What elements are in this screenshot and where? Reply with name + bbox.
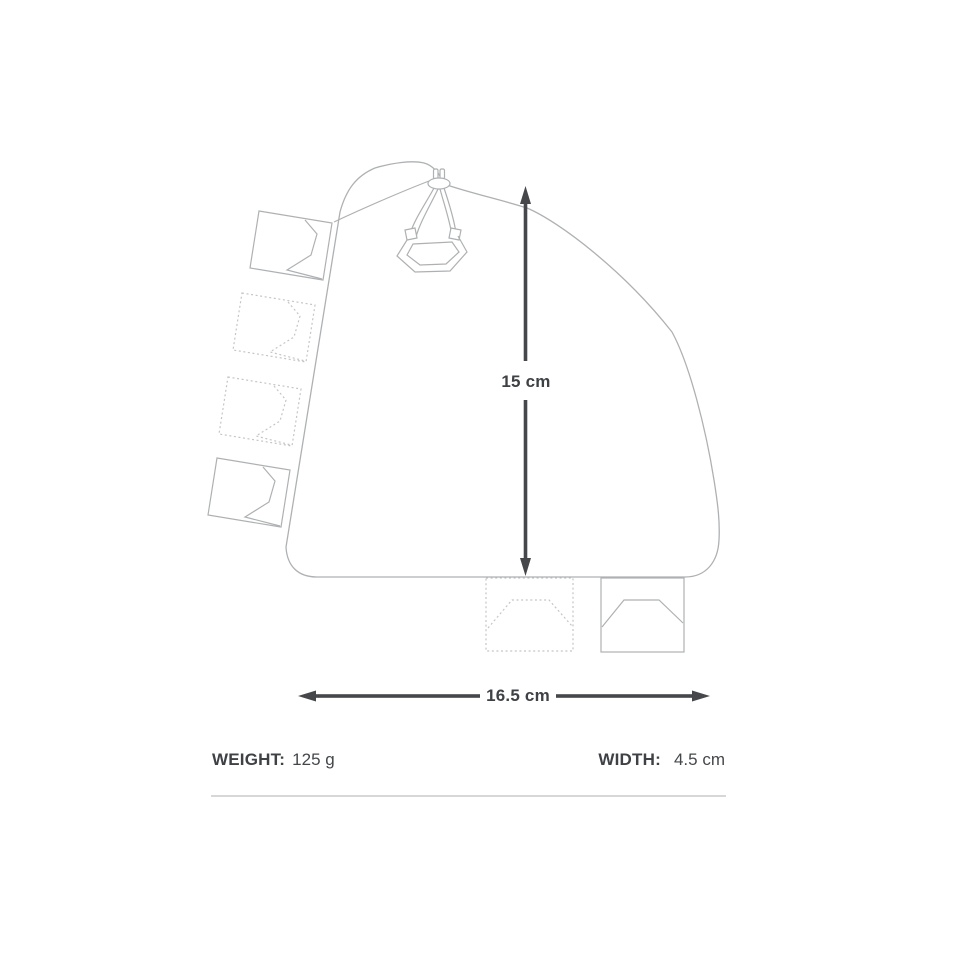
- strap-tab-icon: [250, 211, 332, 280]
- width-label: WIDTH:: [598, 750, 661, 769]
- bag-outline: [286, 162, 719, 577]
- bottom-strap-tabs: [486, 578, 684, 652]
- width-dimension-label: 16.5 cm: [481, 685, 555, 707]
- width-spec: WIDTH:4.5 cm: [598, 750, 725, 770]
- bottom-strap-icon: [601, 578, 684, 652]
- strap-tab-icon: [208, 458, 290, 527]
- weight-label: WEIGHT:: [212, 750, 285, 769]
- weight-spec: WEIGHT:125 g: [212, 750, 335, 770]
- strap-tab-dotted-icon: [233, 293, 315, 362]
- divider-line: [211, 795, 726, 797]
- product-spec-diagram: 15 cm 16.5 cm WEIGHT:125 g WIDTH:4.5 cm: [0, 0, 956, 956]
- width-value: 4.5 cm: [674, 750, 725, 769]
- weight-value: 125 g: [292, 750, 335, 769]
- frame-bag-diagram-svg: [0, 0, 956, 956]
- specs-row: WEIGHT:125 g WIDTH:4.5 cm: [212, 750, 725, 770]
- bottom-strap-dotted-icon: [486, 578, 573, 651]
- height-dimension-label: 15 cm: [496, 371, 555, 393]
- strap-tab-dotted-icon: [219, 377, 301, 446]
